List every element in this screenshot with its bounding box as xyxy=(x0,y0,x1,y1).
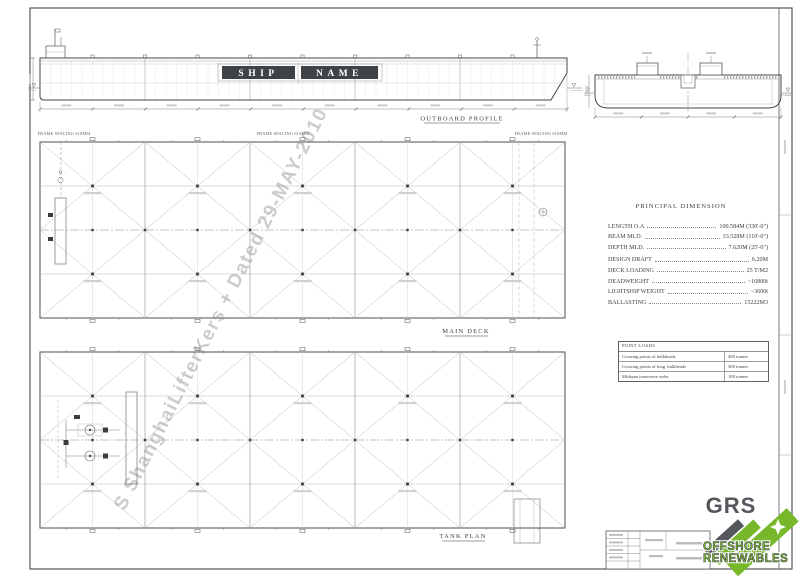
logo-grs-text: GRS xyxy=(706,493,757,518)
grs-logo: GRS OFFSHORE OFFSHORE RENEWABLES RENEWAB… xyxy=(0,0,800,577)
logo-renewables-text: RENEWABLES xyxy=(703,553,788,565)
drawing-sheet: SHIP NAME xyxy=(0,0,800,577)
logo-offshore-text: OFFSHORE xyxy=(703,541,770,553)
